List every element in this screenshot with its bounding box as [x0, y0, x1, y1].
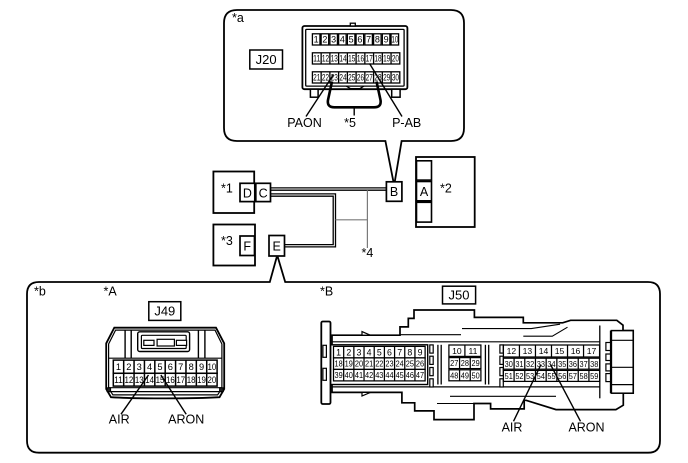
svg-text:27: 27: [366, 73, 373, 83]
svg-text:AIR: AIR: [109, 413, 130, 427]
svg-text:J49: J49: [154, 304, 175, 319]
svg-text:*b: *b: [34, 285, 46, 299]
svg-text:41: 41: [355, 370, 363, 380]
svg-text:48: 48: [450, 370, 458, 380]
svg-text:54: 54: [537, 371, 545, 381]
svg-text:31: 31: [515, 359, 523, 369]
svg-text:29: 29: [471, 358, 479, 368]
svg-text:AIR: AIR: [502, 420, 523, 434]
svg-text:9: 9: [384, 35, 389, 45]
svg-text:2: 2: [126, 362, 131, 372]
svg-text:6: 6: [357, 35, 362, 45]
svg-text:27: 27: [450, 358, 458, 368]
svg-text:59: 59: [590, 371, 598, 381]
svg-text:8: 8: [375, 35, 380, 45]
svg-text:25: 25: [406, 359, 414, 369]
svg-text:*a: *a: [232, 11, 244, 25]
svg-text:D: D: [243, 187, 252, 201]
svg-text:51: 51: [505, 371, 513, 381]
svg-text:20: 20: [208, 375, 217, 385]
svg-text:14: 14: [145, 375, 154, 385]
svg-text:50: 50: [471, 370, 479, 380]
svg-text:6: 6: [387, 347, 392, 357]
svg-text:18: 18: [374, 54, 381, 64]
svg-text:C: C: [259, 187, 268, 201]
svg-text:3: 3: [356, 347, 361, 357]
svg-text:7: 7: [178, 362, 183, 372]
svg-text:16: 16: [357, 54, 364, 64]
svg-text:21: 21: [365, 359, 373, 369]
svg-text:10: 10: [391, 35, 398, 45]
svg-text:29: 29: [383, 73, 390, 83]
svg-text:4: 4: [147, 362, 152, 372]
svg-text:*4: *4: [362, 246, 374, 260]
svg-text:26: 26: [357, 73, 364, 83]
svg-text:46: 46: [406, 370, 414, 380]
svg-text:24: 24: [396, 359, 404, 369]
svg-text:15: 15: [555, 346, 565, 356]
svg-text:2: 2: [346, 347, 351, 357]
svg-text:18: 18: [334, 359, 342, 369]
svg-text:12: 12: [124, 375, 133, 385]
svg-text:47: 47: [416, 370, 424, 380]
svg-text:*B: *B: [320, 285, 333, 299]
svg-text:45: 45: [396, 370, 404, 380]
svg-text:8: 8: [189, 362, 194, 372]
svg-text:17: 17: [587, 346, 597, 356]
svg-text:13: 13: [331, 54, 338, 64]
svg-text:36: 36: [569, 359, 577, 369]
svg-text:21: 21: [313, 73, 320, 83]
svg-text:E: E: [273, 240, 281, 254]
svg-text:*A: *A: [104, 285, 118, 299]
svg-text:J50: J50: [449, 288, 470, 303]
svg-text:5: 5: [349, 35, 354, 45]
svg-text:16: 16: [166, 375, 175, 385]
svg-text:11: 11: [468, 346, 477, 356]
svg-text:F: F: [243, 240, 251, 254]
svg-text:9: 9: [199, 362, 204, 372]
svg-text:12: 12: [507, 346, 517, 356]
svg-text:3: 3: [137, 362, 142, 372]
svg-text:12: 12: [322, 54, 329, 64]
svg-text:35: 35: [558, 359, 566, 369]
svg-text:1: 1: [336, 347, 341, 357]
svg-text:17: 17: [176, 375, 185, 385]
svg-text:9: 9: [418, 347, 423, 357]
svg-text:16: 16: [571, 346, 581, 356]
svg-text:56: 56: [558, 371, 566, 381]
svg-text:6: 6: [168, 362, 173, 372]
svg-text:58: 58: [579, 371, 587, 381]
svg-text:A: A: [420, 185, 429, 199]
svg-text:11: 11: [313, 54, 320, 64]
svg-text:1: 1: [116, 362, 121, 372]
svg-text:26: 26: [416, 359, 424, 369]
svg-text:1: 1: [314, 35, 319, 45]
svg-text:17: 17: [366, 54, 373, 64]
svg-text:30: 30: [392, 73, 399, 83]
svg-text:3: 3: [331, 35, 336, 45]
svg-text:43: 43: [375, 370, 383, 380]
svg-text:10: 10: [208, 362, 217, 372]
svg-text:8: 8: [407, 347, 412, 357]
svg-text:23: 23: [385, 359, 393, 369]
svg-text:4: 4: [340, 35, 345, 45]
svg-text:38: 38: [590, 359, 598, 369]
svg-text:19: 19: [383, 54, 390, 64]
svg-text:33: 33: [537, 359, 545, 369]
svg-text:49: 49: [461, 370, 469, 380]
svg-text:*2: *2: [440, 182, 452, 196]
svg-text:7: 7: [397, 347, 402, 357]
svg-text:10: 10: [452, 346, 462, 356]
svg-text:19: 19: [345, 359, 353, 369]
svg-text:52: 52: [515, 371, 523, 381]
svg-text:32: 32: [526, 359, 534, 369]
svg-text:14: 14: [339, 54, 346, 64]
svg-text:39: 39: [334, 370, 342, 380]
svg-text:B: B: [390, 185, 398, 199]
svg-text:5: 5: [377, 347, 382, 357]
svg-text:4: 4: [367, 347, 372, 357]
svg-text:40: 40: [345, 370, 353, 380]
svg-text:5: 5: [157, 362, 162, 372]
svg-text:13: 13: [523, 346, 533, 356]
svg-text:19: 19: [197, 375, 206, 385]
svg-text:*3: *3: [221, 234, 233, 248]
svg-text:11: 11: [114, 375, 123, 385]
svg-text:7: 7: [366, 35, 371, 45]
svg-text:ARON: ARON: [168, 413, 204, 427]
svg-text:P-AB: P-AB: [392, 116, 421, 130]
svg-text:15: 15: [348, 54, 355, 64]
svg-text:37: 37: [579, 359, 587, 369]
svg-text:25: 25: [348, 73, 355, 83]
svg-text:30: 30: [505, 359, 513, 369]
svg-text:44: 44: [385, 370, 393, 380]
svg-text:24: 24: [339, 73, 346, 83]
svg-text:57: 57: [569, 371, 577, 381]
svg-text:18: 18: [187, 375, 196, 385]
svg-text:2: 2: [322, 35, 327, 45]
svg-text:28: 28: [461, 358, 469, 368]
svg-text:22: 22: [322, 73, 329, 83]
svg-text:20: 20: [392, 54, 399, 64]
svg-text:*1: *1: [221, 182, 233, 196]
svg-text:22: 22: [375, 359, 383, 369]
svg-text:14: 14: [539, 346, 549, 356]
svg-text:ARON: ARON: [568, 420, 604, 434]
svg-text:J20: J20: [256, 52, 277, 67]
svg-text:15: 15: [156, 375, 165, 385]
svg-text:PAON: PAON: [287, 116, 322, 130]
svg-text:*5: *5: [344, 116, 356, 130]
svg-text:42: 42: [365, 370, 373, 380]
svg-text:20: 20: [355, 359, 363, 369]
